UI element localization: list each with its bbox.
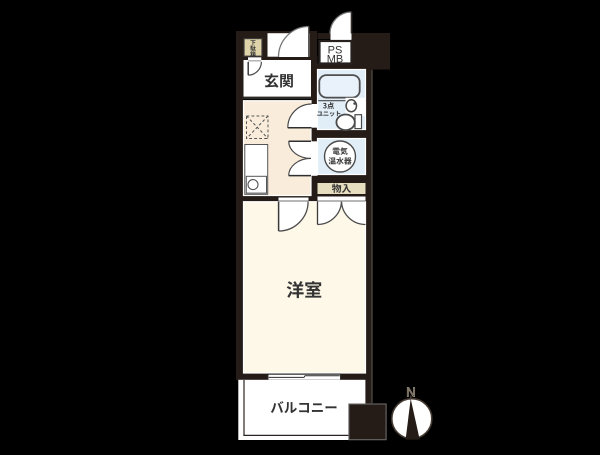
svg-text:MB: MB [327,54,344,66]
